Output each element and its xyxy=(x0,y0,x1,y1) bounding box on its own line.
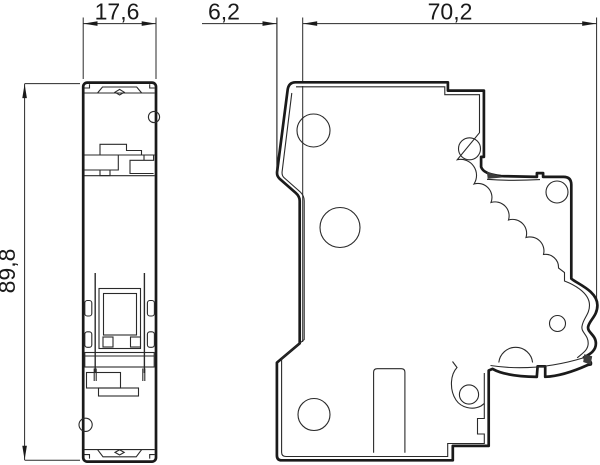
dimension-label-height: 89,8 xyxy=(0,249,20,294)
arrow-right-icon xyxy=(142,21,156,26)
circuit-breaker-dimension-drawing: 17,6 6,2 70,2 89,8 xyxy=(0,0,600,465)
arrow-left-icon xyxy=(303,21,317,26)
technical-drawing-page: 17,6 6,2 70,2 89,8 xyxy=(0,0,600,465)
dimension-height-89-8: 89,8 xyxy=(0,84,27,460)
front-view xyxy=(79,83,160,462)
dimension-label-front-width: 17,6 xyxy=(95,0,140,25)
arrow-up-icon xyxy=(22,84,27,98)
front-view-outline xyxy=(83,83,156,462)
arrow-right-icon xyxy=(582,21,596,26)
dimension-label-front-offset: 6,2 xyxy=(208,0,240,25)
dimension-label-depth: 70,2 xyxy=(428,0,473,25)
dimension-depth-70-2: 70,2 xyxy=(303,0,597,26)
arrow-right-icon xyxy=(263,21,277,26)
arrow-down-icon xyxy=(22,446,27,460)
dimension-offset-6-2: 6,2 xyxy=(202,0,277,26)
side-view xyxy=(277,18,598,461)
dimension-width-17-6: 17,6 xyxy=(83,0,156,26)
